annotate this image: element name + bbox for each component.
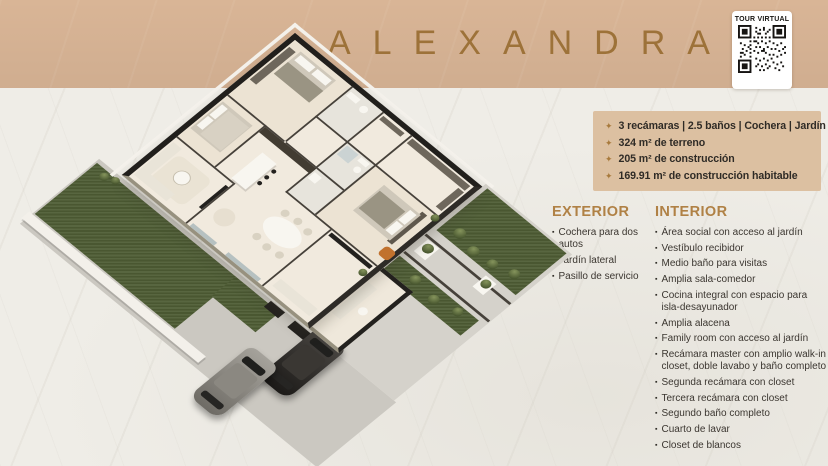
dining-chair	[250, 231, 263, 241]
square-bullet-icon: ▪	[655, 395, 657, 405]
list-item: ▪Family room con acceso al jardín	[655, 333, 827, 345]
square-bullet-icon: ▪	[655, 229, 657, 239]
bar-stool	[263, 174, 270, 180]
exterior-heading: EXTERIOR	[552, 204, 652, 220]
square-bullet-icon: ▪	[655, 260, 657, 270]
square-bullet-icon: ▪	[655, 379, 657, 389]
list-item: ▪Amplia sala-comedor	[655, 274, 827, 286]
feature-text: 3 recámaras | 2.5 baños | Cochera | Jard…	[619, 120, 826, 132]
feature-text: 169.91 m² de construcción habitable	[619, 170, 798, 182]
list-item-text: Cochera para dos autos	[558, 227, 652, 251]
feature-text: 205 m² de construcción	[619, 153, 735, 165]
feature-item: ✦ 205 m² de construcción	[605, 153, 813, 165]
list-item-text: Recámara master con amplio walk-in close…	[661, 349, 827, 373]
list-item: ▪Vestíbulo recibidor	[655, 243, 827, 255]
square-bullet-icon: ▪	[655, 442, 657, 452]
list-item-text: Segunda recámara con closet	[661, 377, 794, 389]
list-item-text: Family room con acceso al jardín	[661, 333, 808, 345]
exterior-section: EXTERIOR ▪Cochera para dos autos ▪Jardín…	[552, 204, 652, 286]
dining-chair	[260, 242, 273, 252]
list-item: ▪Segunda recámara con closet	[655, 377, 827, 389]
tour-virtual-label: TOUR VIRTUAL	[732, 16, 792, 23]
list-item: ▪Medio baño para visitas	[655, 258, 827, 270]
list-item: ▪Tercera recámara con closet	[655, 393, 827, 405]
list-item: ▪Recámara master con amplio walk-in clos…	[655, 349, 827, 373]
square-bullet-icon: ▪	[552, 273, 554, 283]
list-item-text: Medio baño para visitas	[661, 258, 767, 270]
diamond-bullet-icon: ✦	[605, 154, 613, 165]
list-item: ▪Closet de blancos	[655, 440, 827, 452]
qr-code-icon	[738, 25, 786, 73]
list-item: ▪Área social con acceso al jardín	[655, 227, 827, 239]
interior-heading: INTERIOR	[655, 204, 827, 220]
feature-item: ✦ 324 m² de terreno	[605, 137, 813, 149]
list-item: ▪Amplia alacena	[655, 318, 827, 330]
side-table	[356, 306, 370, 318]
entry-rug	[209, 205, 240, 231]
list-item-text: Amplia alacena	[661, 318, 729, 330]
features-band: ✦ 3 recámaras | 2.5 baños | Cochera | Ja…	[593, 111, 821, 191]
list-item: ▪Cuarto de lavar	[655, 424, 827, 436]
interior-section: INTERIOR ▪Área social con acceso al jard…	[655, 204, 827, 455]
feature-text: 324 m² de terreno	[619, 137, 706, 149]
diamond-bullet-icon: ✦	[605, 171, 613, 182]
square-bullet-icon: ▪	[655, 276, 657, 286]
diamond-bullet-icon: ✦	[605, 121, 613, 132]
interior-list: ▪Área social con acceso al jardín ▪Vestí…	[655, 227, 827, 452]
list-item-text: Cuarto de lavar	[661, 424, 729, 436]
dining-chair	[301, 227, 314, 237]
bar-stool	[256, 180, 263, 186]
square-bullet-icon: ▪	[655, 320, 657, 330]
plant	[357, 267, 370, 277]
square-bullet-icon: ▪	[655, 245, 657, 255]
list-item-text: Cocina integral con espacio para isla-de…	[661, 290, 827, 314]
feature-item: ✦ 169.91 m² de construcción habitable	[605, 170, 813, 182]
list-item-text: Vestíbulo recibidor	[661, 243, 743, 255]
list-item: ▪Segundo baño completo	[655, 408, 827, 420]
list-item-text: Segundo baño completo	[661, 408, 769, 420]
car-rear-window	[200, 390, 225, 411]
list-item: ▪Cocina integral con espacio para isla-d…	[655, 290, 827, 314]
list-item-text: Amplia sala-comedor	[661, 274, 755, 286]
dining-chair	[273, 250, 286, 260]
diamond-bullet-icon: ✦	[605, 138, 613, 149]
model-title: ALEXANDRA	[328, 24, 732, 63]
console-table	[379, 116, 404, 137]
list-item-text: Área social con acceso al jardín	[661, 227, 802, 239]
square-bullet-icon: ▪	[655, 410, 657, 420]
feature-item: ✦ 3 recámaras | 2.5 baños | Cochera | Ja…	[605, 120, 813, 132]
square-bullet-icon: ▪	[655, 426, 657, 436]
list-item-text: Pasillo de servicio	[558, 271, 638, 283]
list-item: ▪Pasillo de servicio	[552, 271, 652, 283]
floor-plan	[55, 33, 536, 427]
square-bullet-icon: ▪	[655, 292, 657, 314]
list-item-text: Closet de blancos	[661, 440, 741, 452]
closet-wardrobe	[407, 139, 471, 191]
bar-stool	[270, 169, 277, 175]
list-item: ▪Cochera para dos autos	[552, 227, 652, 251]
tour-virtual-card: TOUR VIRTUAL	[732, 11, 792, 89]
brochure-page: ALEXANDRA TOUR VIRTUAL	[0, 0, 828, 466]
square-bullet-icon: ▪	[655, 351, 657, 373]
square-bullet-icon: ▪	[655, 335, 657, 345]
list-item-text: Tercera recámara con closet	[661, 393, 787, 405]
